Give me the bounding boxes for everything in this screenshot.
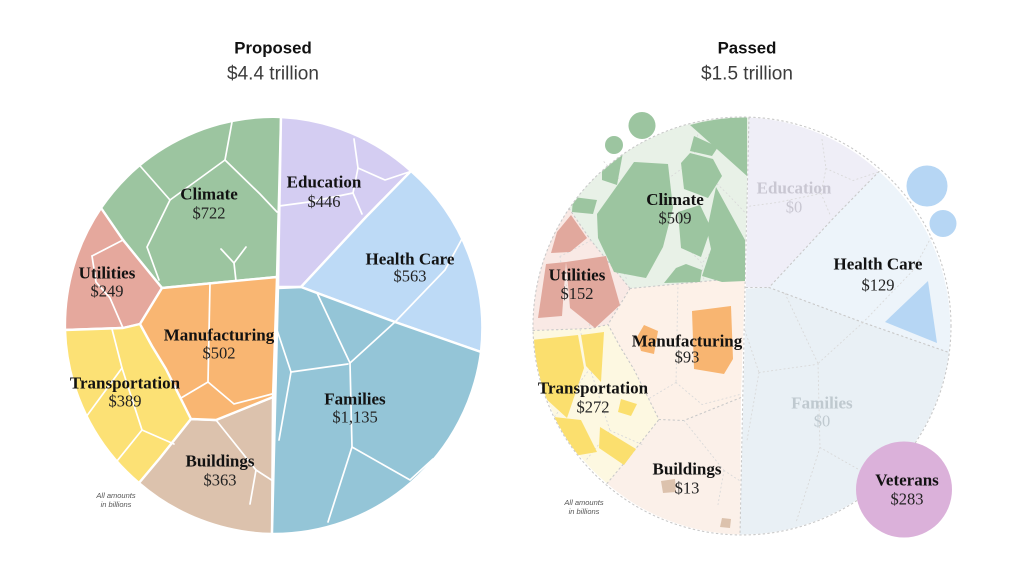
svg-text:$563: $563	[394, 267, 427, 286]
svg-text:Utilities: Utilities	[79, 264, 136, 283]
svg-text:$13: $13	[675, 479, 700, 498]
svg-text:Families: Families	[791, 394, 853, 413]
svg-text:in billions: in billions	[101, 500, 132, 509]
svg-text:All amounts: All amounts	[563, 498, 603, 507]
svg-text:$129: $129	[862, 276, 895, 295]
svg-text:$152: $152	[561, 284, 594, 303]
svg-text:$389: $389	[109, 392, 142, 411]
svg-text:Passed: Passed	[718, 39, 777, 58]
svg-text:$0: $0	[786, 198, 803, 217]
svg-text:Buildings: Buildings	[186, 452, 255, 471]
svg-text:Climate: Climate	[646, 190, 704, 209]
svg-text:Health Care: Health Care	[834, 255, 923, 274]
svg-text:Manufacturing: Manufacturing	[164, 326, 275, 345]
svg-text:$502: $502	[203, 344, 236, 363]
svg-text:$1,135: $1,135	[332, 408, 377, 427]
svg-text:Education: Education	[757, 179, 832, 198]
svg-text:$509: $509	[659, 209, 692, 228]
svg-text:$272: $272	[577, 398, 610, 417]
svg-text:Education: Education	[287, 173, 362, 192]
svg-text:$249: $249	[91, 282, 124, 301]
svg-text:$283: $283	[891, 490, 924, 509]
svg-text:$446: $446	[308, 192, 341, 211]
svg-text:$363: $363	[204, 471, 237, 490]
svg-text:Proposed: Proposed	[234, 39, 311, 58]
svg-text:Veterans: Veterans	[875, 471, 939, 490]
svg-text:$1.5 trillion: $1.5 trillion	[701, 64, 793, 85]
svg-text:Transportation: Transportation	[70, 374, 181, 393]
svg-text:Utilities: Utilities	[549, 266, 606, 285]
svg-text:in billions: in billions	[569, 507, 600, 516]
svg-text:Climate: Climate	[180, 185, 238, 204]
svg-text:Transportation: Transportation	[538, 379, 649, 398]
svg-text:$4.4 trillion: $4.4 trillion	[227, 64, 319, 85]
svg-text:$0: $0	[814, 412, 831, 431]
svg-text:$93: $93	[675, 348, 700, 367]
svg-text:Buildings: Buildings	[653, 460, 722, 479]
svg-text:All amounts: All amounts	[95, 491, 135, 500]
svg-text:Families: Families	[324, 390, 386, 409]
svg-text:$722: $722	[193, 204, 226, 223]
